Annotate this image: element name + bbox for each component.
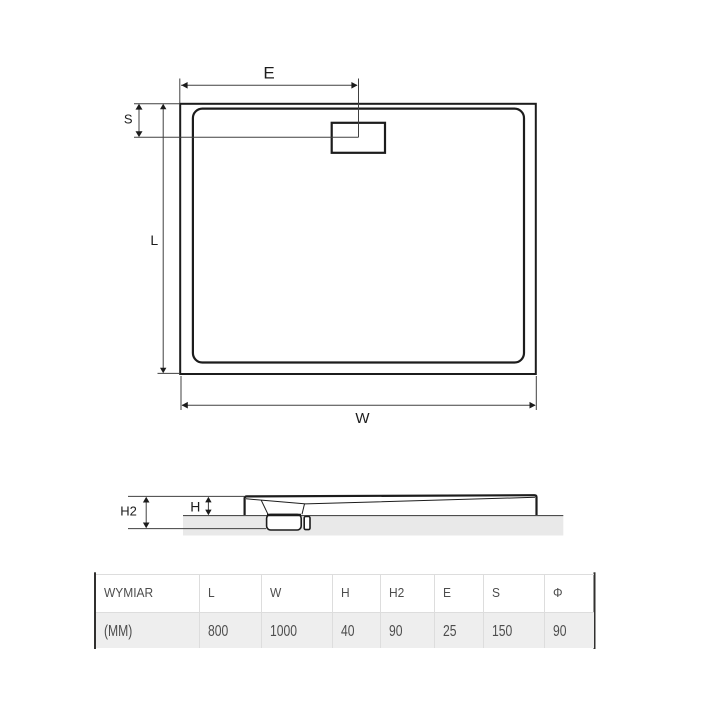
- svg-text:L: L: [150, 232, 158, 248]
- svg-text:H: H: [190, 499, 200, 515]
- svg-text:E: E: [263, 63, 274, 82]
- svg-text:W: W: [355, 410, 370, 427]
- svg-text:S: S: [124, 112, 133, 127]
- svg-text:H2: H2: [120, 503, 137, 518]
